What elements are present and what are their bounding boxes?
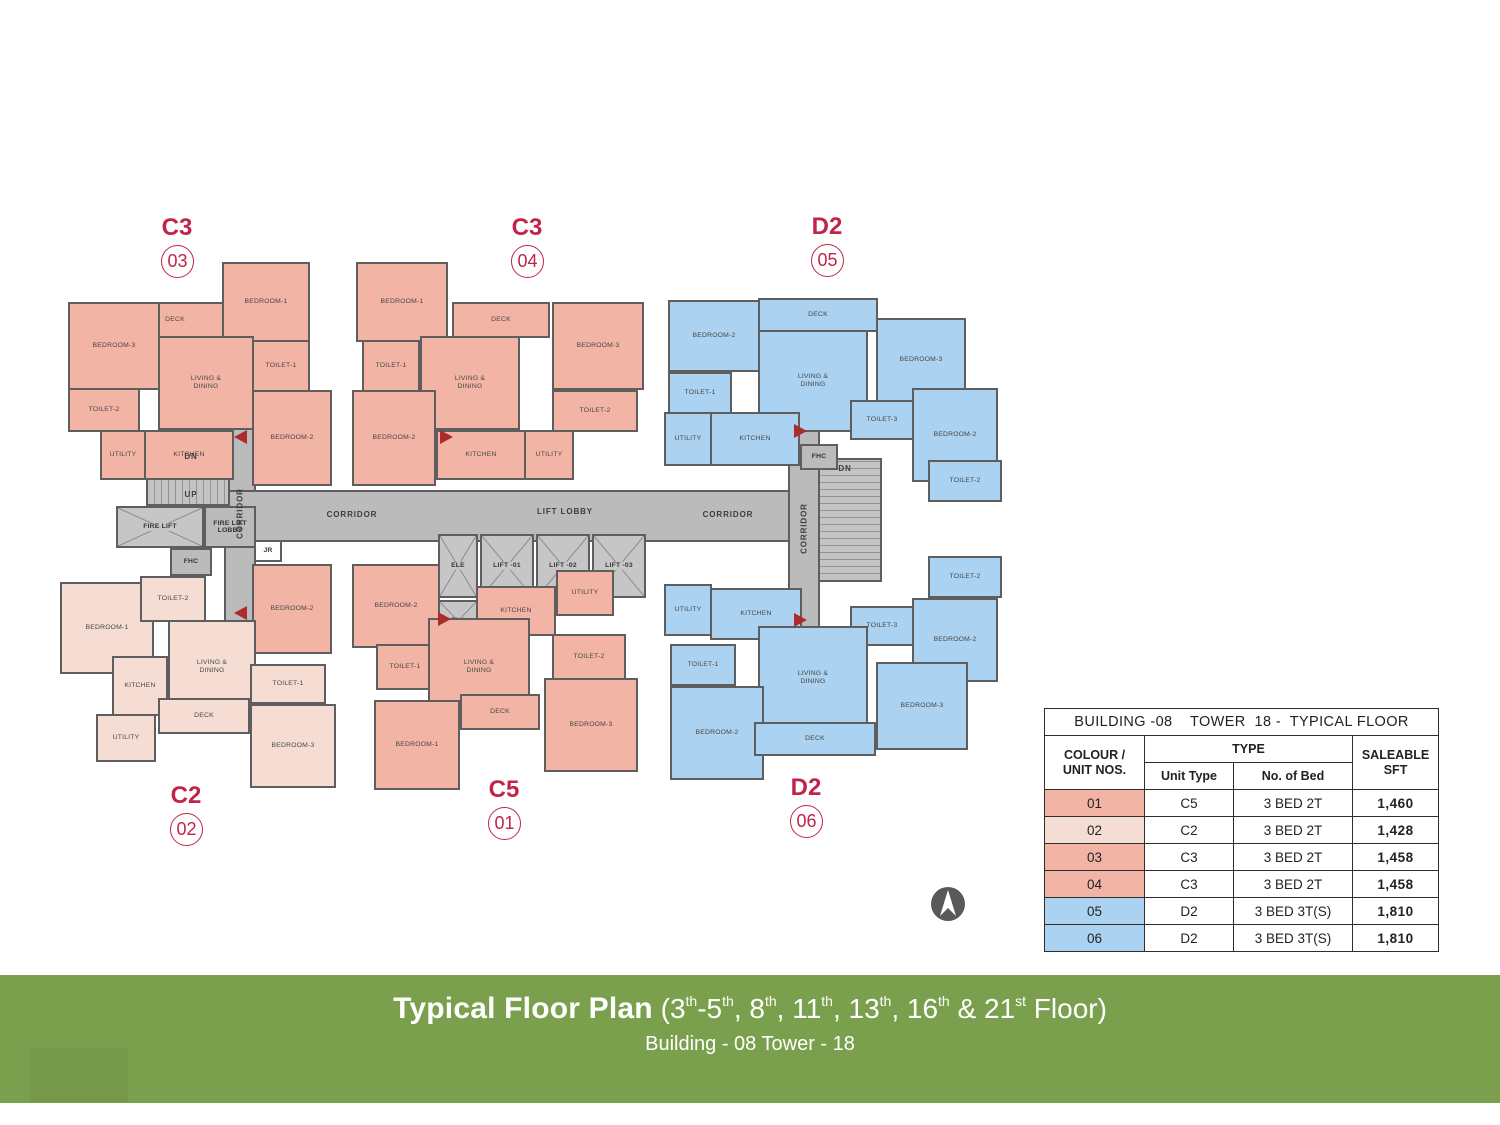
room-bedroom-2: BEDROOM-2 xyxy=(670,686,764,780)
north-compass-icon xyxy=(929,885,967,923)
corridor-label: CORRIDOR xyxy=(800,484,809,574)
core-label: LIFT -03 xyxy=(603,562,635,569)
floor-ordinal-sup: th xyxy=(722,993,734,1009)
floor-text: , 11 xyxy=(777,993,822,1024)
room-deck: DECK xyxy=(452,302,550,338)
room-utility: UTILITY xyxy=(100,430,146,480)
unit-no-cell: 03 xyxy=(1045,844,1145,871)
room-utility: UTILITY xyxy=(524,430,574,480)
bed-cell: 3 BED 3T(S) xyxy=(1234,898,1353,925)
core-fire-lift: FIRE LIFT xyxy=(116,506,204,548)
room-toilet-2: TOILET-2 xyxy=(552,634,626,680)
unit-type-cell: C3 xyxy=(1145,844,1234,871)
room-label: TOILET-1 xyxy=(688,661,719,669)
room-label: TOILET-2 xyxy=(158,595,189,603)
room-bedroom-2: BEDROOM-2 xyxy=(668,300,760,372)
room-label: KITCHEN xyxy=(124,682,155,690)
room-label: KITCHEN xyxy=(739,435,770,443)
floor-text: ( xyxy=(653,993,670,1024)
room-label: BEDROOM-2 xyxy=(271,434,314,442)
room-toilet-1: TOILET-1 xyxy=(376,644,434,690)
room-label: BEDROOM-1 xyxy=(86,624,129,632)
room-living-dining: LIVING & DINING xyxy=(158,336,254,430)
sft-cell: 1,458 xyxy=(1353,871,1439,898)
unit-no-cell: 05 xyxy=(1045,898,1145,925)
room-bedroom-1: BEDROOM-1 xyxy=(374,700,460,790)
room-toilet-2: TOILET-2 xyxy=(140,576,206,622)
room-deck: DECK xyxy=(158,698,250,734)
bed-cell: 3 BED 2T xyxy=(1234,844,1353,871)
room-toilet-2: TOILET-2 xyxy=(928,556,1002,598)
room-label: LIVING & DINING xyxy=(188,659,236,675)
room-bedroom-1: BEDROOM-1 xyxy=(356,262,448,342)
core-label: ELE xyxy=(449,562,467,569)
entry-arrow-icon xyxy=(234,430,247,444)
unit-type-cell: C3 xyxy=(1145,871,1234,898)
room-label: TOILET-1 xyxy=(273,680,304,688)
room-label: BEDROOM-3 xyxy=(272,742,315,750)
sft-cell: 1,810 xyxy=(1353,925,1439,952)
entry-arrow-icon xyxy=(438,612,451,626)
saleable-header: SALEABLESFT xyxy=(1353,736,1439,790)
room-label: DECK xyxy=(808,311,828,319)
room-bedroom-3: BEDROOM-3 xyxy=(876,662,968,750)
corridor-label: CORRIDOR xyxy=(683,510,773,519)
core-label: FHC xyxy=(184,558,199,565)
room-label: UTILITY xyxy=(536,451,563,459)
room-bedroom-3: BEDROOM-3 xyxy=(552,302,644,390)
sft-cell: 1,810 xyxy=(1353,898,1439,925)
entry-arrow-icon xyxy=(234,606,247,620)
room-toilet-1: TOILET-1 xyxy=(362,340,420,392)
room-toilet-1: TOILET-1 xyxy=(668,372,732,414)
footer-floors: (3th-5th, 8th, 11th, 13th, 16th & 21st F… xyxy=(653,993,1107,1024)
room-label: DECK xyxy=(194,712,214,720)
entry-arrow-icon xyxy=(440,430,453,444)
unit-type-cell: C2 xyxy=(1145,817,1234,844)
bed-cell: 3 BED 2T xyxy=(1234,817,1353,844)
room-label: BEDROOM-2 xyxy=(271,605,314,613)
bed-cell: 3 BED 3T(S) xyxy=(1234,925,1353,952)
unit-label-c5-01: C5 xyxy=(464,776,544,804)
unit-type-cell: C5 xyxy=(1145,790,1234,817)
table-row: 01C53 BED 2T1,460 xyxy=(1045,790,1439,817)
room-utility: UTILITY xyxy=(664,412,712,466)
entry-arrow-icon xyxy=(794,424,807,438)
room-label: BEDROOM-3 xyxy=(93,342,136,350)
room-deck: DECK xyxy=(460,694,540,730)
room-kitchen: KITCHEN xyxy=(710,412,800,466)
room-label: TOILET-2 xyxy=(574,653,605,661)
footer-banner: Typical Floor Plan (3th-5th, 8th, 11th, … xyxy=(0,975,1500,1103)
room-bedroom-2: BEDROOM-2 xyxy=(252,564,332,654)
footer-title: Typical Floor Plan (3th-5th, 8th, 11th, … xyxy=(0,992,1500,1026)
room-deck: DECK xyxy=(758,298,878,332)
unit-no-cell: 06 xyxy=(1045,925,1145,952)
room-label: BEDROOM-1 xyxy=(396,741,439,749)
corridor-label: LIFT LOBBY xyxy=(510,507,620,516)
room-bedroom-3: BEDROOM-3 xyxy=(68,302,160,390)
room-label: UTILITY xyxy=(113,734,140,742)
unit-number-04: 04 xyxy=(511,245,544,278)
room-label: BEDROOM-2 xyxy=(934,431,977,439)
unit-label-c2-02: C2 xyxy=(146,782,226,810)
unit-label-d2-05: D2 xyxy=(787,213,867,241)
unit-number-03: 03 xyxy=(161,245,194,278)
floor-ordinal-sup: th xyxy=(686,993,698,1009)
room-label: TOILET-1 xyxy=(266,362,297,370)
bed-cell: 3 BED 2T xyxy=(1234,790,1353,817)
unit-type-cell: D2 xyxy=(1145,898,1234,925)
room-bedroom-2: BEDROOM-2 xyxy=(352,390,436,486)
room-label: TOILET-2 xyxy=(950,477,981,485)
room-label: UTILITY xyxy=(110,451,137,459)
floor-text: & 21 xyxy=(950,993,1015,1024)
colour-unit-header: COLOUR /UNIT NOS. xyxy=(1045,736,1145,790)
table-row: 03C33 BED 2T1,458 xyxy=(1045,844,1439,871)
floor-ordinal-sup: th xyxy=(880,993,892,1009)
unit-number-05: 05 xyxy=(811,244,844,277)
room-label: BEDROOM-3 xyxy=(577,342,620,350)
room-label: KITCHEN xyxy=(740,610,771,618)
room-label: TOILET-2 xyxy=(89,406,120,414)
room-toilet-2: TOILET-2 xyxy=(552,390,638,432)
sft-cell: 1,458 xyxy=(1353,844,1439,871)
room-label: TOILET-3 xyxy=(867,416,898,424)
room-toilet-1: TOILET-1 xyxy=(670,644,736,686)
page: { "colors": { "salmon": "#F2B4A4", "ligh… xyxy=(0,0,1500,1125)
footer-subtitle: Building - 08 Tower - 18 xyxy=(0,1033,1500,1056)
room-label: TOILET-1 xyxy=(390,663,421,671)
unit-type-header: Unit Type xyxy=(1145,763,1234,790)
core-label: JR xyxy=(263,547,272,554)
room-label: UTILITY xyxy=(572,589,599,597)
core-fire-lift-lobby: FIRE LIFT LOBBY xyxy=(204,506,256,548)
room-toilet-1: TOILET-1 xyxy=(250,664,326,704)
room-label: LIVING & DINING xyxy=(446,375,494,391)
room-label: BEDROOM-2 xyxy=(375,602,418,610)
room-toilet-1: TOILET-1 xyxy=(252,340,310,392)
floor-text: , 13 xyxy=(833,993,880,1024)
room-label: DECK xyxy=(491,316,511,324)
footer-accent-square xyxy=(30,1048,128,1102)
room-toilet-2: TOILET-2 xyxy=(928,460,1002,502)
room-label: BEDROOM-2 xyxy=(373,434,416,442)
floor-text: 3 xyxy=(670,993,686,1024)
core-label: FIRE LIFT LOBBY xyxy=(206,520,254,535)
core-label: FIRE LIFT xyxy=(141,523,179,530)
room-living-dining: LIVING & DINING xyxy=(758,626,868,730)
sft-cell: 1,428 xyxy=(1353,817,1439,844)
room-label: DECK xyxy=(165,316,185,324)
room-label: LIVING & DINING xyxy=(789,373,837,389)
floor-plan: FIRE LIFTFIRE LIFT LOBBYFHCELELIFT -01LI… xyxy=(0,0,1500,1125)
corridor-label: UP xyxy=(176,490,206,499)
room-deck: DECK xyxy=(754,722,876,756)
room-bedroom-3: BEDROOM-3 xyxy=(250,704,336,788)
corridor-area xyxy=(818,458,882,582)
core-label: LIFT -02 xyxy=(547,562,579,569)
unit-number-06: 06 xyxy=(790,805,823,838)
floor-text: , 16 xyxy=(891,993,938,1024)
core-fhc: FHC xyxy=(170,548,212,576)
room-label: DECK xyxy=(490,708,510,716)
room-label: TOILET-3 xyxy=(867,622,898,630)
spec-table: BUILDING -08 TOWER 18 - TYPICAL FLOOR CO… xyxy=(1044,708,1439,952)
core-label: LIFT -01 xyxy=(491,562,523,569)
room-label: KITCHEN xyxy=(465,451,496,459)
room-label: BEDROOM-2 xyxy=(934,636,977,644)
corridor-label: DN xyxy=(176,452,206,461)
room-label: BEDROOM-1 xyxy=(381,298,424,306)
room-label: UTILITY xyxy=(675,435,702,443)
core-jr: JR xyxy=(254,540,282,562)
unit-label-c3-03: C3 xyxy=(137,214,217,242)
unit-number-01: 01 xyxy=(488,807,521,840)
room-label: TOILET-2 xyxy=(580,407,611,415)
sft-cell: 1,460 xyxy=(1353,790,1439,817)
core-label: FHC xyxy=(812,453,827,460)
unit-no-cell: 01 xyxy=(1045,790,1145,817)
table-row: 02C23 BED 2T1,428 xyxy=(1045,817,1439,844)
room-utility: UTILITY xyxy=(96,714,156,762)
corridor-label: CORRIDOR xyxy=(307,510,397,519)
bed-cell: 3 BED 2T xyxy=(1234,871,1353,898)
table-title: BUILDING -08 TOWER 18 - TYPICAL FLOOR xyxy=(1045,709,1439,736)
room-bedroom-2: BEDROOM-2 xyxy=(252,390,332,486)
room-label: BEDROOM-1 xyxy=(245,298,288,306)
unit-number-02: 02 xyxy=(170,813,203,846)
type-header: TYPE xyxy=(1145,736,1353,763)
floor-text: , 8 xyxy=(734,993,765,1024)
room-utility: UTILITY xyxy=(556,570,614,616)
floor-ordinal-sup: th xyxy=(938,993,950,1009)
room-label: TOILET-2 xyxy=(950,573,981,581)
room-toilet-2: TOILET-2 xyxy=(68,388,140,432)
room-bedroom-1: BEDROOM-1 xyxy=(222,262,310,342)
corridor-label: DN xyxy=(830,464,860,473)
unit-label-d2-06: D2 xyxy=(766,774,846,802)
unit-no-cell: 02 xyxy=(1045,817,1145,844)
floor-ordinal-sup: th xyxy=(821,993,833,1009)
floor-ordinal-sup: th xyxy=(765,993,777,1009)
bed-header: No. of Bed xyxy=(1234,763,1353,790)
room-label: TOILET-1 xyxy=(376,362,407,370)
room-label: BEDROOM-3 xyxy=(570,721,613,729)
table-row: 06D23 BED 3T(S)1,810 xyxy=(1045,925,1439,952)
floor-text: -5 xyxy=(697,993,722,1024)
floor-ordinal-sup: st xyxy=(1015,993,1026,1009)
room-label: DECK xyxy=(805,735,825,743)
room-bedroom-3: BEDROOM-3 xyxy=(544,678,638,772)
room-label: BEDROOM-3 xyxy=(901,702,944,710)
floor-text: Floor) xyxy=(1026,993,1107,1024)
room-label: BEDROOM-3 xyxy=(900,356,943,364)
core-ele: ELE xyxy=(438,534,478,598)
room-label: UTILITY xyxy=(675,606,702,614)
room-label: LIVING & DINING xyxy=(455,659,503,675)
table-row: 04C33 BED 2T1,458 xyxy=(1045,871,1439,898)
table-row: 05D23 BED 3T(S)1,810 xyxy=(1045,898,1439,925)
room-label: LIVING & DINING xyxy=(182,375,230,391)
room-utility: UTILITY xyxy=(664,584,712,636)
entry-arrow-icon xyxy=(794,613,807,627)
room-toilet-3: TOILET-3 xyxy=(850,400,914,440)
room-label: KITCHEN xyxy=(500,607,531,615)
room-label: LIVING & DINING xyxy=(789,670,837,686)
room-bedroom-2: BEDROOM-2 xyxy=(352,564,440,648)
unit-label-c3-04: C3 xyxy=(487,214,567,242)
room-label: TOILET-1 xyxy=(685,389,716,397)
footer-title-bold: Typical Floor Plan xyxy=(393,992,653,1025)
corridor-label: CORRIDOR xyxy=(236,469,245,559)
unit-no-cell: 04 xyxy=(1045,871,1145,898)
room-label: BEDROOM-2 xyxy=(693,332,736,340)
room-label: BEDROOM-2 xyxy=(696,729,739,737)
unit-type-cell: D2 xyxy=(1145,925,1234,952)
